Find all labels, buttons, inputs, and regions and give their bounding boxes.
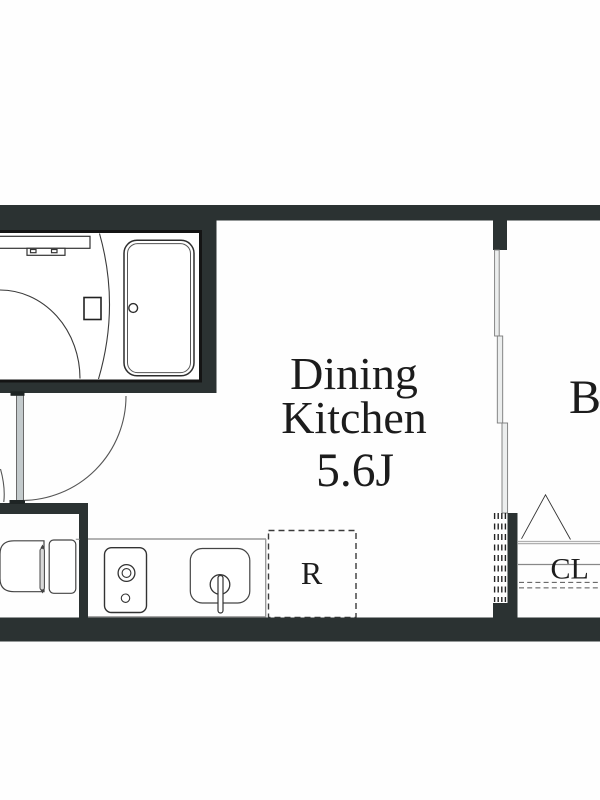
- svg-text:5.6J: 5.6J: [316, 445, 394, 497]
- svg-text:Kitchen: Kitchen: [281, 392, 427, 443]
- svg-text:CL: CL: [551, 553, 589, 586]
- svg-text:R: R: [301, 555, 323, 591]
- svg-text:Be: Be: [569, 371, 600, 424]
